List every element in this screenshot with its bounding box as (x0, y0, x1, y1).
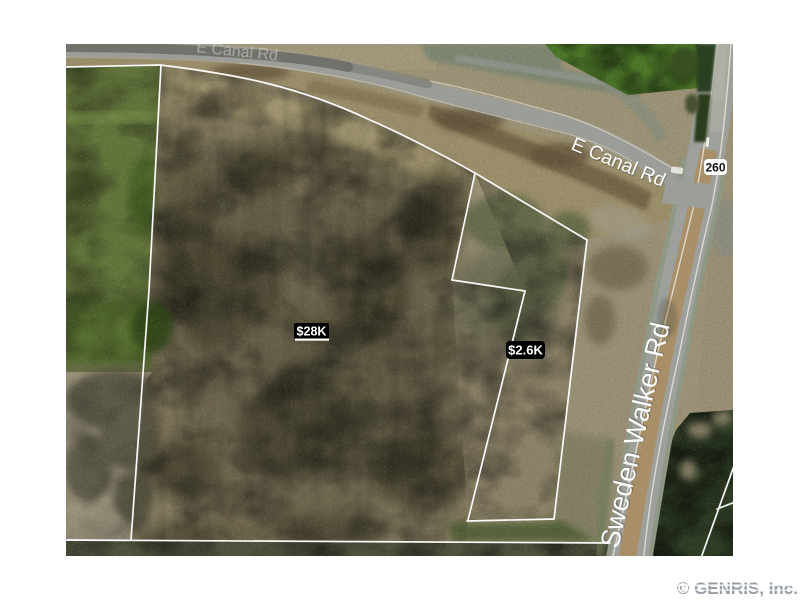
svg-text:$28K: $28K (297, 325, 327, 339)
svg-text:260: 260 (705, 161, 725, 175)
svg-text:© GENRIS, Inc.: © GENRIS, Inc. (677, 579, 798, 598)
svg-text:$2.6K: $2.6K (508, 343, 543, 358)
